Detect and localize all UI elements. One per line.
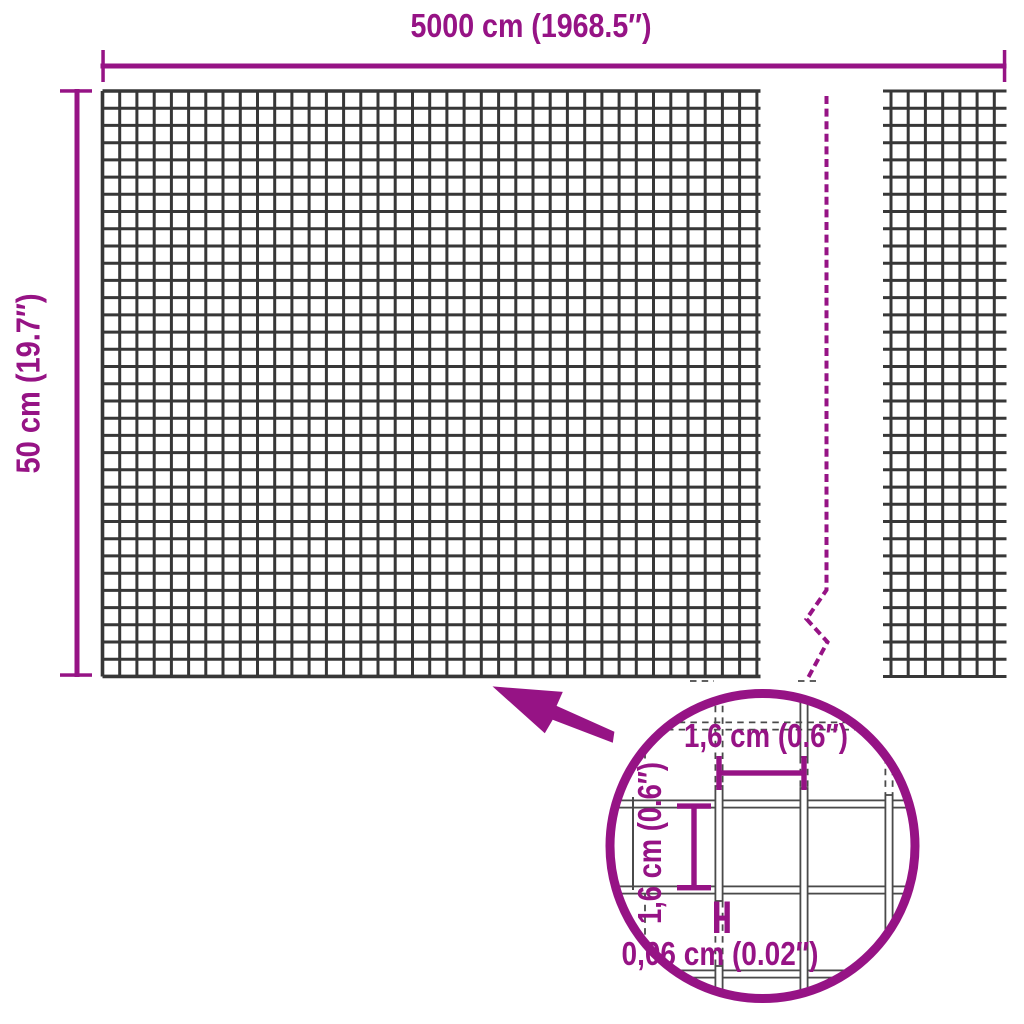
svg-text:5000 cm (1968.5″): 5000 cm (1968.5″): [411, 8, 652, 45]
svg-text:0,06 cm (0.02″): 0,06 cm (0.02″): [622, 936, 819, 973]
svg-text:1,6 cm (0.6″): 1,6 cm (0.6″): [632, 762, 669, 924]
svg-text:1,6 cm (0.6″): 1,6 cm (0.6″): [684, 718, 848, 755]
svg-text:50 cm (19.7″): 50 cm (19.7″): [11, 294, 48, 474]
